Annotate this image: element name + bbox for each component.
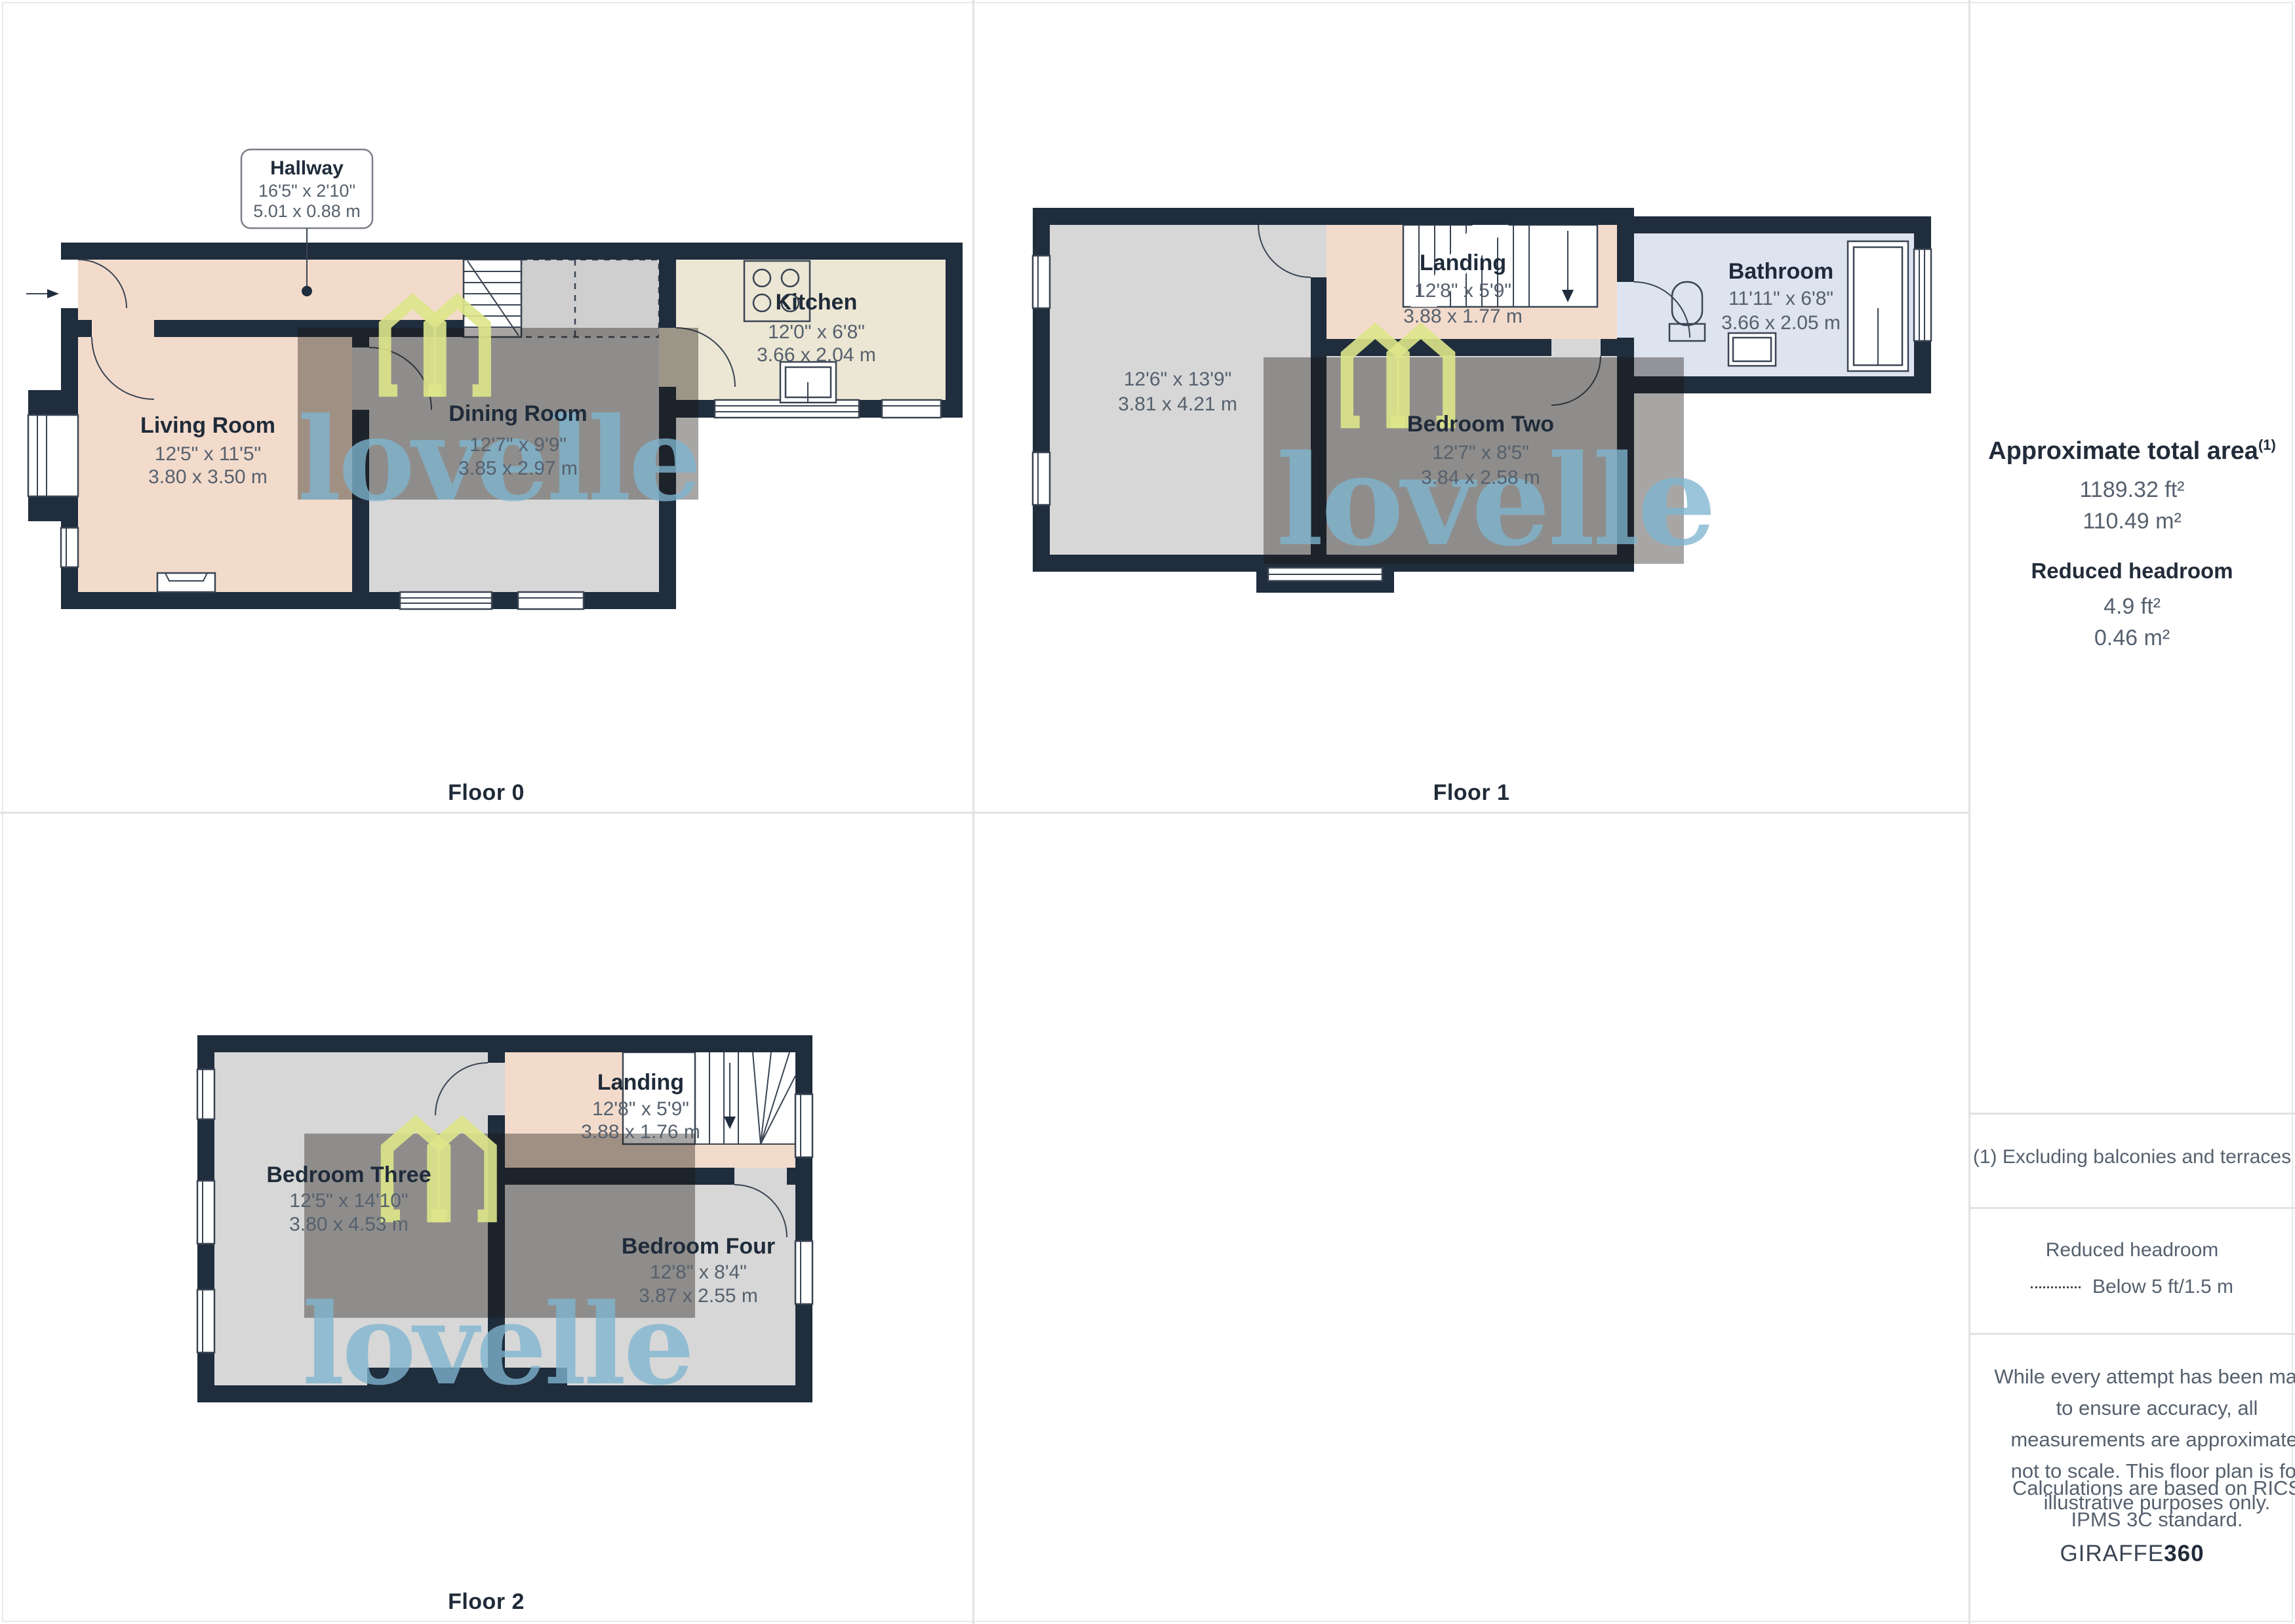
total-area-ft: 1189.32 ft² [1969,477,2295,503]
floor0-fireplace-icon [157,573,215,592]
floor2-bedroom-three-name: Bedroom Three [266,1162,431,1187]
floor1-plan: lovelle 12'6" x 13'9" 3.81 x 4.21 m Land… [974,0,1968,812]
giraffe360-logo-text: GIRAFFE [2060,1541,2164,1566]
floor0-living-room-label: Living Room 12'5" x 11'5" 3.80 x 3.50 m [140,413,275,488]
standard-text: Calculations are based on RICS IPMS 3C s… [1969,1473,2295,1535]
legend-title: Reduced headroom [1969,1239,2295,1261]
floorplan-sheet: lovelle Hallway 16'5" x 2'10" 5.01 x 0.8… [0,0,2295,1624]
floor2-landing-name: Landing [597,1070,684,1095]
floor0-hallway-name: Hallway [270,157,344,179]
floor1-landing-dims-m: 3.88 x 1.77 m [1403,306,1523,327]
floor2-bedroom-four-name: Bedroom Four [622,1234,775,1259]
floor0-hallway-dims-ft: 16'5" x 2'10" [258,181,355,201]
floor2-landing-label: Landing 12'8" x 5'9" 3.88 x 1.76 m [581,1070,700,1143]
floor1-bedroom-two-name: Bedroom Two [1407,412,1554,437]
floor1-bedroom-two-dims-ft: 12'7" x 8'5" [1432,442,1529,464]
floor0-kitchen-name: Kitchen [776,290,858,315]
floor0-under-stairs-area [521,260,659,337]
floor0-staircase [464,260,521,337]
floor0-dining-room-name: Dining Room [449,401,588,426]
legend-row: Below 5 ft/1.5 m [1969,1276,2295,1298]
floor2-landing-dims-ft: 12'8" x 5'9" [592,1098,689,1120]
floor0-living-window [61,528,78,567]
floor0-living-room-dims-m: 3.80 x 3.50 m [148,466,268,488]
floor2-bedroom-three-label: Bedroom Three 12'5" x 14'10" 3.80 x 4.53… [266,1162,431,1235]
floor2-bedroom-four-dims-m: 3.87 x 2.55 m [639,1285,758,1307]
floor0-dining-windows [400,592,584,609]
floor1-bathroom-dims-ft: 11'11" x 6'8" [1728,288,1833,309]
floor1-bedroom-two-dims-m: 3.84 x 2.58 m [1421,467,1540,488]
floor0-sink-icon [780,362,836,403]
floor0-hallway-dims-m: 5.01 x 0.88 m [253,201,361,221]
floor0-kitchen-dims-m: 3.66 x 2.04 m [757,344,876,366]
floor1-landing-label: Landing 12'8" x 5'9" 3.88 x 1.77 m [1403,250,1523,327]
floor1-bathroom-sink-icon [1728,333,1776,366]
floor1-bathroom-label: Bathroom 11'11" x 6'8" 3.66 x 2.05 m [1721,259,1841,334]
floor0-dining-room-dims-m: 3.85 x 2.97 m [458,458,578,479]
floor0-label: Floor 0 [0,780,972,806]
floor2-bedroom-four-dims-ft: 12'8" x 8'4" [650,1261,747,1283]
floor1-bedroom-one-dims-m: 3.81 x 4.21 m [1118,393,1237,415]
floor2-bedroom-three-windows [197,1069,214,1353]
floor1-bathroom-name: Bathroom [1728,259,1834,284]
floor0-living-room-dims-ft: 12'5" x 11'5" [155,443,261,465]
floor1-shower-icon [1848,241,1908,371]
reduced-headroom-title: Reduced headroom [1969,559,2295,584]
total-area-footnote-marker: (1) [2258,437,2276,453]
floor2-bedroom-three-dims-ft: 12'5" x 14'10" [289,1190,408,1212]
sidebar-divider-3 [1968,1333,2295,1335]
floor0-plan: lovelle Hallway 16'5" x 2'10" 5.01 x 0.8… [0,0,972,812]
floor1-bathroom-dims-m: 3.66 x 2.05 m [1721,312,1841,334]
floor2-plan: lovelle Bedroom Three 12'5" x 14'10" 3.8… [0,814,972,1624]
giraffe360-logo: GIRAFFE360 [1969,1541,2295,1567]
floor0-living-room-name: Living Room [140,413,275,438]
floor0-kitchen-dims-ft: 12'0" x 6'8" [768,321,865,343]
floor0-dining-room-dims-ft: 12'7" x 9'9" [469,434,567,456]
total-area-title: Approximate total area(1) [1969,437,2295,465]
total-area-title-text: Approximate total area [1988,437,2258,465]
reduced-headroom-m: 0.46 m² [1969,625,2295,651]
floor1-landing-name: Landing [1420,250,1506,275]
floor2-label: Floor 2 [0,1589,972,1615]
floor2-bedroom-three-dims-m: 3.80 x 4.53 m [289,1214,409,1235]
floor1-bedroom-one-dims-ft: 12'6" x 13'9" [1124,368,1232,390]
floor1-label: Floor 1 [974,780,1968,806]
total-area-m: 110.49 m² [1969,509,2295,534]
sidebar-divider-1 [1968,1113,2295,1115]
giraffe360-logo-suffix: 360 [2164,1541,2204,1566]
watermark-text: lovelle [302,1279,692,1410]
balconies-footnote: (1) Excluding balconies and terraces [1969,1146,2295,1168]
reduced-headroom-dotted-line-icon [2031,1286,2081,1288]
floor1-bathroom-window [1914,249,1931,341]
floor2-landing-dims-m: 3.88 x 1.76 m [581,1121,700,1143]
floor1-landing-dims-ft: 12'8" x 5'9" [1414,280,1511,302]
sidebar-divider-2 [1968,1207,2295,1209]
reduced-headroom-ft: 4.9 ft² [1969,594,2295,620]
legend-item: Below 5 ft/1.5 m [2092,1276,2233,1298]
